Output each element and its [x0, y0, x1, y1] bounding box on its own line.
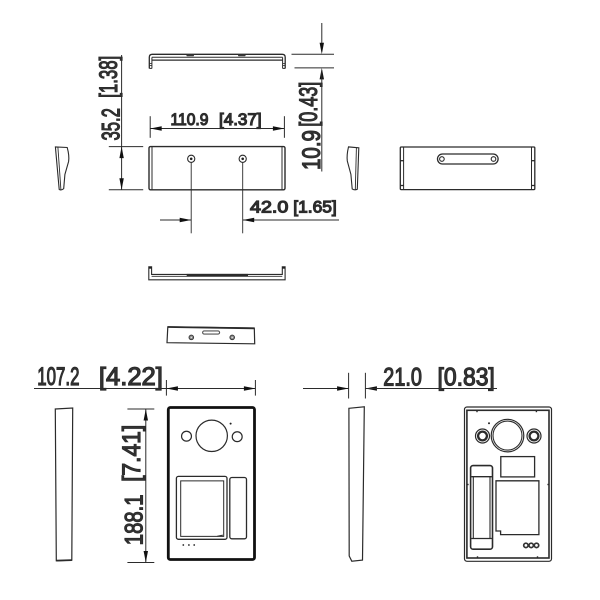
svg-text:[0.43]: [0.43]: [295, 82, 323, 127]
svg-text:[4.22]: [4.22]: [99, 363, 163, 391]
svg-text:[7.41]: [7.41]: [118, 425, 146, 482]
svg-text:21.0: 21.0: [383, 363, 422, 391]
svg-text:[0.83]: [0.83]: [438, 363, 495, 391]
svg-text:[1.65]: [1.65]: [293, 198, 336, 217]
svg-text:110.9: 110.9: [171, 110, 209, 129]
svg-text:35.2: 35.2: [98, 108, 126, 140]
svg-text:10.9: 10.9: [298, 130, 326, 170]
svg-text:188.1: 188.1: [121, 495, 149, 546]
svg-text:42.0: 42.0: [250, 198, 288, 217]
svg-text:[4.37]: [4.37]: [219, 110, 262, 129]
svg-text:107.2: 107.2: [37, 363, 79, 391]
svg-text:[1.38]: [1.38]: [95, 56, 123, 98]
